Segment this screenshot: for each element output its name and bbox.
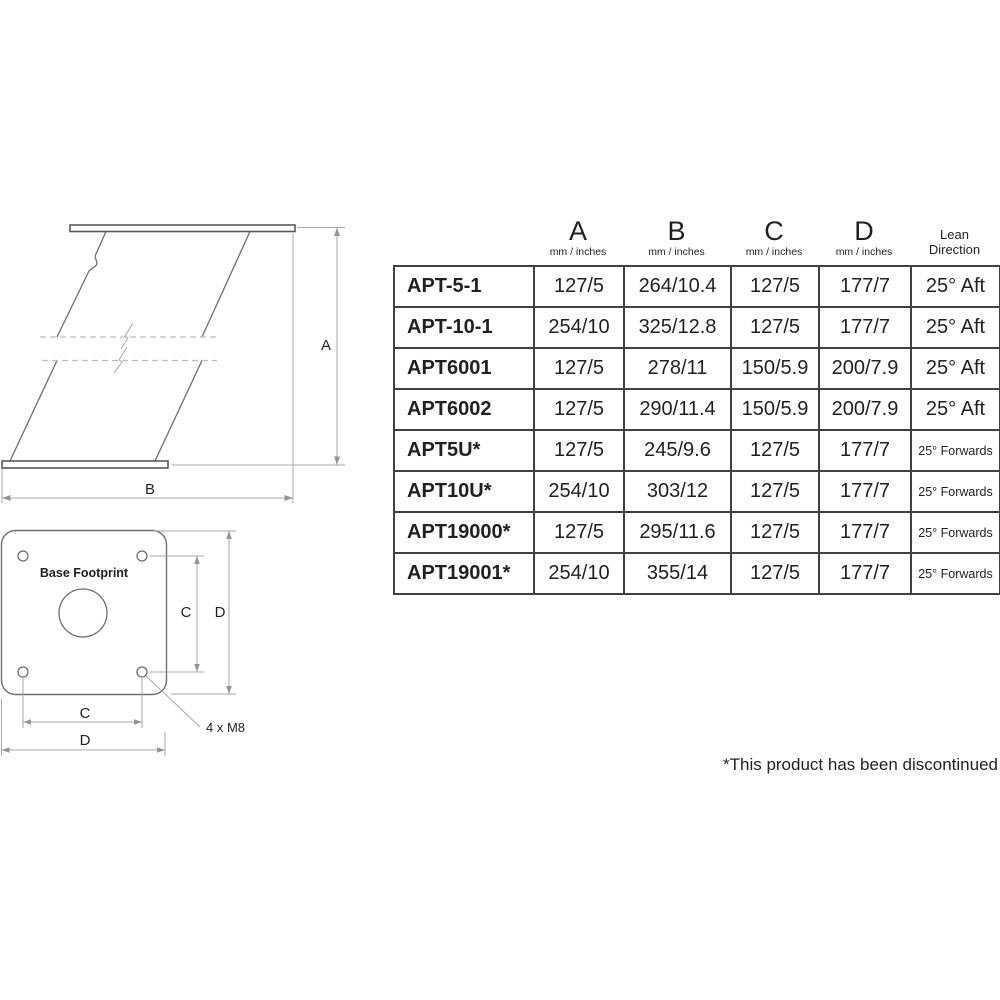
table-row: APT6002127/5290/11.4150/5.9200/7.925° Af… [394, 389, 1000, 430]
c-value-cell: 127/5 [731, 430, 819, 471]
b-value-cell: 303/12 [624, 471, 731, 512]
dim-b-label: B [145, 481, 155, 498]
column-letter: A [533, 216, 623, 246]
dim-d-vert-label: D [215, 604, 226, 621]
discontinued-footnote: *This product has been discontinued [398, 755, 998, 775]
a-value-cell: 254/10 [534, 307, 624, 348]
dim-d-vert-arrow-down [226, 686, 232, 694]
pedestal-left-leg-lower [10, 361, 57, 462]
a-value-cell: 127/5 [534, 512, 624, 553]
base-plate [2, 461, 168, 468]
spec-table: APT-5-1127/5264/10.4127/5177/725° AftAPT… [393, 265, 1000, 595]
bolt-hole-bottom-right [137, 667, 147, 677]
model-name-cell: APT19001* [394, 553, 534, 594]
dim-c-vert-label: C [181, 604, 192, 621]
model-name-cell: APT-5-1 [394, 266, 534, 307]
model-name-cell: APT19000* [394, 512, 534, 553]
column-unit: mm / inches [730, 246, 818, 259]
lean-direction-cell: 25° Forwards [911, 430, 1000, 471]
d-value-cell: 200/7.9 [819, 389, 911, 430]
lean-header-line1: Lean [910, 228, 999, 243]
column-header-c: C mm / inches [730, 216, 818, 259]
d-value-cell: 177/7 [819, 512, 911, 553]
dim-d-horiz-arrow-right [157, 747, 165, 753]
break-zigzag-top [121, 323, 133, 349]
a-value-cell: 127/5 [534, 430, 624, 471]
dim-b-arrow-right [285, 495, 294, 501]
a-value-cell: 127/5 [534, 348, 624, 389]
column-header-d: D mm / inches [818, 216, 910, 259]
a-value-cell: 254/10 [534, 553, 624, 594]
bolt-hole-top-left [18, 551, 28, 561]
pedestal-right-leg-lower [155, 361, 202, 462]
c-value-cell: 150/5.9 [731, 348, 819, 389]
c-value-cell: 127/5 [731, 553, 819, 594]
c-value-cell: 127/5 [731, 266, 819, 307]
lean-header-line2: Direction [910, 243, 999, 258]
lean-direction-cell: 25° Forwards [911, 512, 1000, 553]
column-header-lean-direction: Lean Direction [910, 216, 999, 259]
d-value-cell: 177/7 [819, 266, 911, 307]
table-row: APT-10-1254/10325/12.8127/5177/725° Aft [394, 307, 1000, 348]
d-value-cell: 200/7.9 [819, 348, 911, 389]
column-header-b: B mm / inches [623, 216, 730, 259]
pedestal-left-leg-upper [57, 232, 106, 338]
c-value-cell: 150/5.9 [731, 389, 819, 430]
b-value-cell: 355/14 [624, 553, 731, 594]
b-value-cell: 264/10.4 [624, 266, 731, 307]
model-name-cell: APT-10-1 [394, 307, 534, 348]
column-letter: D [818, 216, 910, 246]
lean-direction-cell: 25° Forwards [911, 553, 1000, 594]
lean-direction-cell: 25° Aft [911, 266, 1000, 307]
model-name-cell: APT10U* [394, 471, 534, 512]
dim-c-horiz-arrow-left [23, 719, 31, 725]
base-footprint-diagram: Base Footprint C D C D 4 x M8 [0, 520, 320, 770]
dim-c-horiz-arrow-right [134, 719, 142, 725]
table-row: APT19000*127/5295/11.6127/5177/725° Forw… [394, 512, 1000, 553]
b-value-cell: 290/11.4 [624, 389, 731, 430]
d-value-cell: 177/7 [819, 471, 911, 512]
dim-c-horiz-label: C [80, 705, 91, 722]
footprint-title: Base Footprint [40, 566, 129, 580]
spec-table-body: APT-5-1127/5264/10.4127/5177/725° AftAPT… [394, 266, 1000, 594]
c-value-cell: 127/5 [731, 307, 819, 348]
dim-d-vert-arrow-up [226, 531, 232, 539]
bolt-hole-top-right [137, 551, 147, 561]
pedestal-right-leg-upper [202, 232, 250, 338]
table-row: APT19001*254/10355/14127/5177/725° Forwa… [394, 553, 1000, 594]
top-mounting-plate [70, 225, 295, 232]
model-name-cell: APT5U* [394, 430, 534, 471]
d-value-cell: 177/7 [819, 553, 911, 594]
c-value-cell: 127/5 [731, 471, 819, 512]
model-name-cell: APT6002 [394, 389, 534, 430]
table-row: APT-5-1127/5264/10.4127/5177/725° Aft [394, 266, 1000, 307]
b-value-cell: 325/12.8 [624, 307, 731, 348]
bolt-callout-leader [146, 676, 200, 727]
lean-direction-cell: 25° Aft [911, 307, 1000, 348]
bolt-spec-label: 4 x M8 [206, 720, 245, 735]
d-value-cell: 177/7 [819, 430, 911, 471]
c-value-cell: 127/5 [731, 512, 819, 553]
b-value-cell: 278/11 [624, 348, 731, 389]
a-value-cell: 127/5 [534, 266, 624, 307]
column-unit: mm / inches [818, 246, 910, 259]
dim-b-arrow-left [2, 495, 11, 501]
spec-table-header: A mm / inches B mm / inches C mm / inche… [533, 216, 999, 259]
table-row: APT5U*127/5245/9.6127/5177/725° Forwards [394, 430, 1000, 471]
column-letter: C [730, 216, 818, 246]
dim-a-arrow-up [334, 228, 340, 237]
model-name-cell: APT6001 [394, 348, 534, 389]
lean-direction-cell: 25° Aft [911, 348, 1000, 389]
dim-d-horiz-label: D [80, 732, 91, 749]
pedestal-side-view-diagram: A B [0, 200, 360, 515]
column-unit: mm / inches [623, 246, 730, 259]
lean-direction-cell: 25° Forwards [911, 471, 1000, 512]
center-hole [59, 589, 107, 637]
table-row: APT6001127/5278/11150/5.9200/7.925° Aft [394, 348, 1000, 389]
dim-a-arrow-down [334, 457, 340, 466]
column-letter: B [623, 216, 730, 246]
dim-c-vert-arrow-up [194, 556, 200, 564]
table-row: APT10U*254/10303/12127/5177/725° Forward… [394, 471, 1000, 512]
a-value-cell: 127/5 [534, 389, 624, 430]
column-unit: mm / inches [533, 246, 623, 259]
a-value-cell: 254/10 [534, 471, 624, 512]
dim-a-label: A [321, 337, 331, 354]
b-value-cell: 245/9.6 [624, 430, 731, 471]
lean-direction-cell: 25° Aft [911, 389, 1000, 430]
dim-c-vert-arrow-down [194, 664, 200, 672]
bolt-hole-bottom-left [18, 667, 28, 677]
column-header-a: A mm / inches [533, 216, 623, 259]
b-value-cell: 295/11.6 [624, 512, 731, 553]
d-value-cell: 177/7 [819, 307, 911, 348]
dim-d-horiz-arrow-left [2, 747, 10, 753]
